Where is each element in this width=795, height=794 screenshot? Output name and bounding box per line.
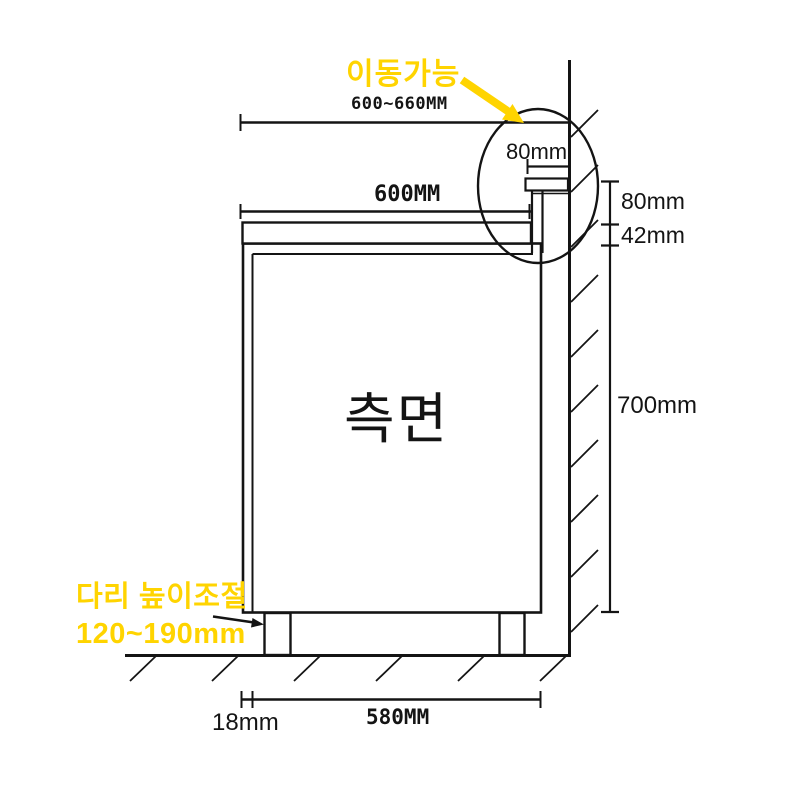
dim-label-tabletop-depth: 600MM <box>374 183 440 207</box>
legs <box>265 613 525 655</box>
dim-label-top-thickness: 42mm <box>621 223 685 248</box>
view-label: 측면 <box>344 390 449 449</box>
wall-rail-bracket <box>526 179 569 254</box>
technical-drawing-side-view: 이동가능 600~660MM 600MM 80mm 80mm 42mm 700m… <box>0 0 795 794</box>
front-leg <box>265 613 291 655</box>
dim-label-inner-width: 580MM <box>366 706 429 729</box>
dim-label-panel-thickness: 18mm <box>212 710 279 736</box>
dim-label-body-height: 700mm <box>617 393 697 419</box>
dim-label-overall-depth: 600~660MM <box>351 95 448 113</box>
movable-arrow <box>462 80 524 123</box>
dim-label-rail-offset: 80mm <box>621 189 685 214</box>
rear-leg <box>500 613 525 655</box>
wall <box>570 60 599 656</box>
dim-overall-depth <box>240 114 570 131</box>
wall-hatching <box>571 110 598 632</box>
annotation-leg-adjust-line1: 다리 높이조절 <box>76 579 248 616</box>
annotation-leg-adjust: 다리 높이조절 120~190mm <box>76 579 248 653</box>
annotation-movable: 이동가능 <box>346 59 460 91</box>
dim-label-rail-width: 80mm <box>506 140 567 164</box>
floor-hatching <box>130 656 566 681</box>
annotation-leg-adjust-line2: 120~190mm <box>76 616 248 653</box>
floor <box>125 656 571 682</box>
